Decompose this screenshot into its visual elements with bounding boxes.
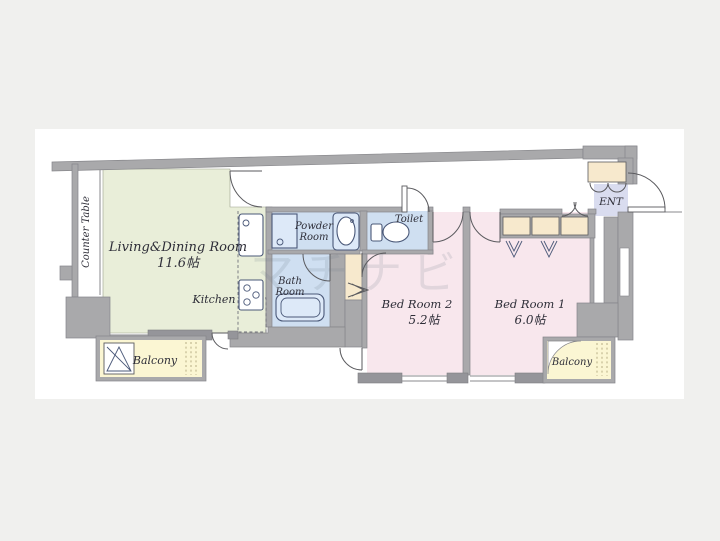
kitchen-door-sill [228,331,238,339]
right-step-block [577,303,618,337]
bedroom-sill-mid [447,373,468,383]
powder-toilet-divider [360,211,367,251]
hallway-wall-east2 [588,209,596,214]
toilet-icon [371,222,409,242]
balcony-right-label: Balcony [551,357,593,368]
left-wall [72,164,78,297]
washing-machine-icon [272,214,297,248]
between-doors-stub [463,207,470,212]
hallway-wall-east [500,209,562,214]
left-bottom-block [66,297,110,338]
toilet-label: Toilet [395,214,424,225]
bedroom2-service-arc [340,348,362,370]
shoe-cabinet [588,162,626,182]
powder-room-label-2: Room [298,232,328,243]
entry-door-leaf [628,207,665,212]
bedroom2-size: 5.2帖 [408,313,441,327]
bedroom2-sill-left [358,373,402,383]
balcony-left-label: Balcony [132,354,178,367]
wash-basin-icon [333,213,359,250]
living-door-arc [230,171,262,207]
toilet-door-arc [407,188,429,212]
floor-plan-svg: マチナビ Living&Dining Room 11.6帖 Kitchen Co… [0,0,720,541]
living-room-size: 11.6帖 [157,256,201,271]
below-closet-wall [345,300,362,347]
bedroom1-sill [515,373,545,383]
bedroom1-size: 6.0帖 [514,313,547,327]
right-mass-upper [604,217,618,303]
powder-room-label-1: Powder [294,221,334,232]
entrance-label: ENT [598,196,624,208]
toilet-door-leaf [402,186,407,212]
right-wall-window-slot [620,248,629,296]
bedroom1-label: Bed Room 1 [494,297,566,311]
bedroom2-label: Bed Room 2 [381,297,453,311]
bath-room-label-2: Room [274,287,304,298]
counter-table-label: Counter Table [81,196,92,268]
living-room-label: Living&Dining Room [108,240,247,255]
kitchen-door-arc [212,333,228,349]
closet-box-1 [503,217,530,235]
top-exterior-wall [52,149,583,171]
hallway-wall-west [266,207,404,212]
bath-room-label-1: Bath [277,276,302,287]
closet-box-3 [561,217,588,235]
left-window-box [60,266,72,280]
kitchen-label: Kitchen [192,293,236,306]
page-background: マチナビ Living&Dining Room 11.6帖 Kitchen Co… [0,0,720,541]
closet-box-2 [532,217,559,235]
